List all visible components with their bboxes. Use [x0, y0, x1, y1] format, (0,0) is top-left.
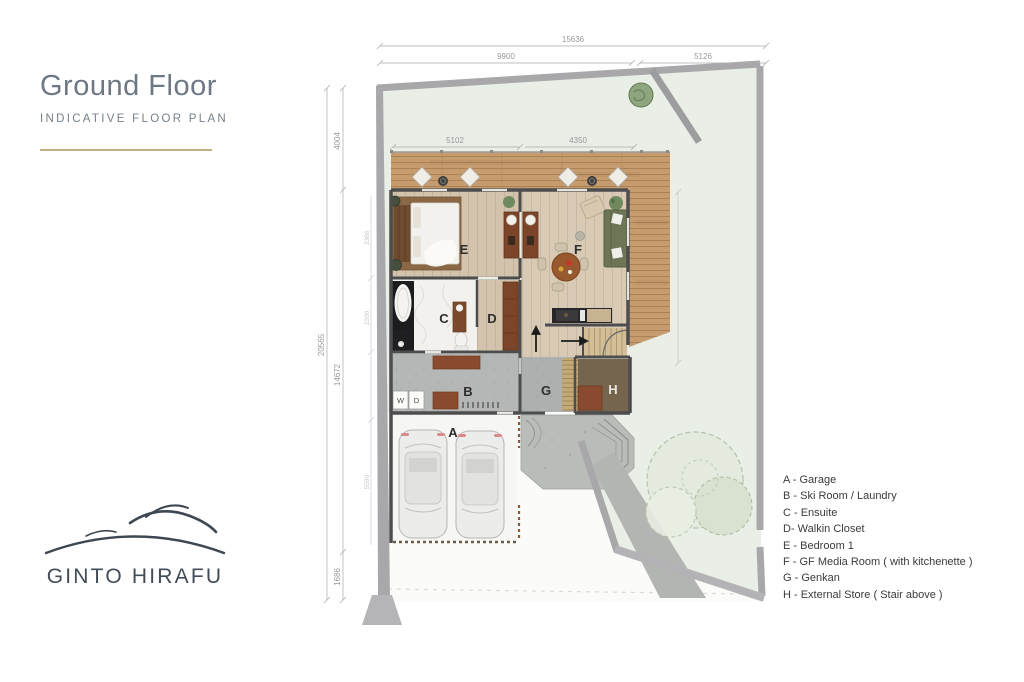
car-icon	[399, 430, 447, 538]
room-label-skiroom: B	[463, 384, 472, 399]
room-label-genkan: G	[541, 383, 551, 398]
room-label-bedroom: E	[460, 242, 469, 257]
dim-inner-b: 2200	[364, 310, 371, 325]
kitchenette-counter	[552, 308, 612, 323]
toilet-icon	[455, 333, 468, 352]
bench	[433, 356, 480, 369]
storage-box	[433, 392, 458, 409]
car-icon	[456, 431, 504, 538]
bed-headboard	[394, 205, 411, 262]
legend-item-media-room: F - GF Media Room ( with kitchenette )	[783, 554, 973, 570]
washer-icon: W	[393, 391, 408, 409]
dim-site-height-total: 20565	[317, 333, 326, 356]
floor-plan: W D	[310, 25, 780, 640]
svg-text:D: D	[414, 396, 420, 405]
legend-item-ensuite: C - Ensuite	[783, 505, 973, 521]
store-box	[578, 386, 602, 410]
legend-item-bedroom-1: E - Bedroom 1	[783, 538, 973, 554]
brand-logo: GINTO HIRAFU	[30, 496, 240, 589]
dim-height-top: 4004	[333, 132, 342, 150]
dim-site-width-left: 9900	[497, 52, 515, 61]
room-label-ensuite: C	[439, 311, 449, 326]
page-header: Ground Floor INDICATIVE FLOOR PLAN	[40, 70, 228, 151]
legend-item-garage: A - Garage	[783, 472, 973, 488]
legend-item-genkan: G - Genkan	[783, 570, 973, 586]
dim-height-bottom: 1686	[333, 568, 342, 586]
room-label-store: H	[608, 382, 617, 397]
page-subtitle: INDICATIVE FLOOR PLAN	[40, 113, 228, 125]
dim-site-width-total: 15636	[562, 35, 585, 44]
dim-inner-a: 3386	[364, 230, 371, 245]
plant-icon	[609, 196, 623, 210]
legend-item-external-store: H - External Store ( Stair above )	[783, 587, 973, 603]
dim-site-width-right: 5126	[694, 52, 712, 61]
dining-table	[552, 253, 580, 281]
staircase	[584, 328, 627, 357]
page: { "header": { "title": "Ground Floor", "…	[0, 0, 1024, 682]
page-title: Ground Floor	[40, 70, 228, 103]
svg-text:W: W	[397, 396, 405, 405]
gold-divider	[40, 149, 212, 151]
mountain-swoosh-icon	[30, 496, 240, 558]
brand-name: GINTO HIRAFU	[30, 565, 240, 589]
bush-icon	[629, 83, 653, 107]
bedroom-furniture	[390, 196, 461, 271]
dim-deck-right: 4350	[569, 136, 587, 145]
room-label-media: F	[574, 242, 582, 257]
sofa	[604, 210, 629, 267]
side-table	[576, 232, 585, 241]
room-legend: A - Garage B - Ski Room / Laundry C - En…	[783, 472, 973, 603]
dim-inner-c: 5590	[364, 474, 371, 489]
dim-height-mid: 14672	[333, 363, 342, 386]
room-label-garage: A	[448, 425, 458, 440]
room-label-closet: D	[487, 311, 496, 326]
wardrobe	[503, 282, 518, 350]
plant-icon	[503, 196, 515, 208]
boiler	[392, 330, 411, 351]
legend-item-ski-room: B - Ski Room / Laundry	[783, 488, 973, 504]
dim-deck-left: 5102	[446, 136, 464, 145]
legend-item-walkin-closet: D- Walkin Closet	[783, 521, 973, 537]
dryer-icon: D	[409, 391, 424, 409]
